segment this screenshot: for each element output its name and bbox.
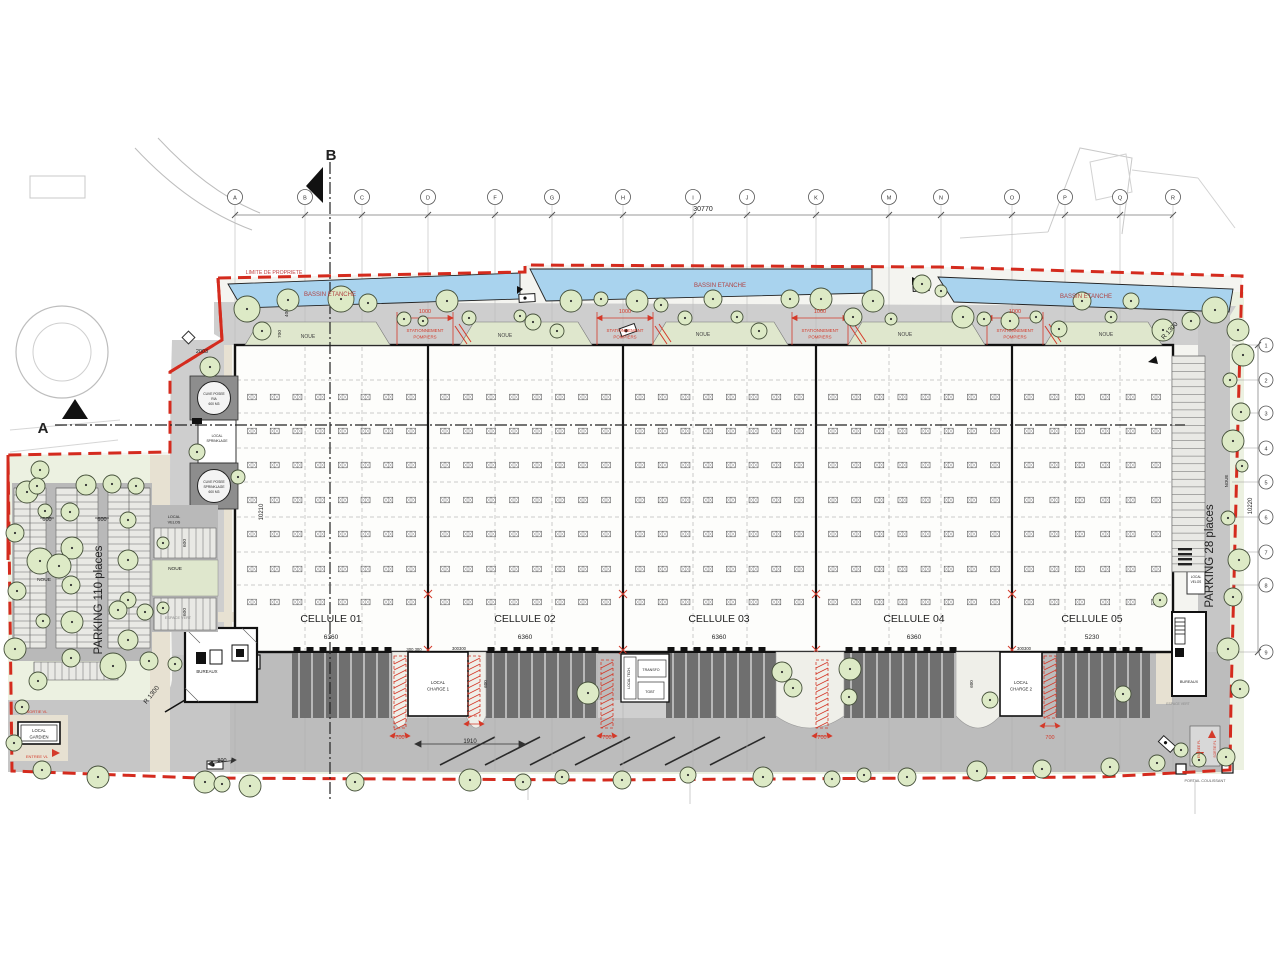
smoke-vent-icon (967, 394, 976, 400)
tree-icon (514, 310, 526, 322)
smoke-vent-icon (407, 531, 416, 537)
tree-icon (1227, 319, 1249, 341)
smoke-vent-icon (898, 497, 907, 503)
row-number: 6 (1264, 515, 1267, 521)
smoke-vent-icon (407, 497, 416, 503)
smoke-vent-icon (636, 428, 645, 434)
noue-right-label: NOUE (1224, 475, 1229, 488)
tree-icon (1217, 638, 1239, 660)
limite-propriete-label: LIMITE DE PROPRIETE (246, 270, 303, 276)
smoke-vent-icon (293, 462, 302, 468)
tree-icon (76, 475, 96, 495)
cellule-01-label: CELLULE 01 (300, 613, 361, 625)
tree-icon (844, 308, 862, 326)
grid-letter: Q (1118, 196, 1123, 202)
smoke-vent-icon (533, 394, 542, 400)
smoke-vent-icon (1152, 497, 1161, 503)
tree-icon (29, 478, 45, 494)
smoke-vent-icon (579, 599, 588, 605)
vehicle-icon (519, 294, 535, 303)
smoke-vent-icon (579, 462, 588, 468)
smoke-vent-icon (875, 566, 884, 572)
smoke-vent-icon (1025, 599, 1034, 605)
grid-letters: ABCDFGHIJKMNOPQR (228, 190, 1181, 205)
smoke-vent-icon (636, 599, 645, 605)
smoke-vent-icon (749, 394, 758, 400)
smoke-vent-icon (1126, 599, 1135, 605)
smoke-vent-icon (967, 531, 976, 537)
pompiers-label-1b: POMPIERS (413, 335, 436, 340)
cuve1-b: RIA (211, 397, 217, 401)
pompiers-label-3b: POMPIERS (808, 335, 831, 340)
smoke-vent-icon (726, 531, 735, 537)
smoke-vent-icon (1025, 394, 1034, 400)
smoke-vent-icon (772, 531, 781, 537)
smoke-vent-icon (681, 531, 690, 537)
tree-icon (824, 771, 840, 787)
tree-icon (1232, 344, 1254, 366)
tree-icon (231, 470, 245, 484)
smoke-vent-icon (248, 428, 257, 434)
smoke-vent-icon (1126, 566, 1135, 572)
noue-label-2: NOUE (498, 333, 513, 339)
smoke-vent-icon (898, 428, 907, 434)
smoke-vent-icon (316, 531, 325, 537)
transfo-label: TRANSFO (642, 668, 659, 672)
smoke-vent-icon (967, 599, 976, 605)
smoke-vent-icon (510, 599, 519, 605)
cuve2-a: CUVE POSEE (203, 480, 225, 484)
smoke-vent-icon (921, 462, 930, 468)
tree-icon (103, 475, 121, 493)
smoke-vent-icon (681, 599, 690, 605)
smoke-vent-icon (1101, 428, 1110, 434)
smoke-vent-icon (270, 428, 279, 434)
smoke-vent-icon (704, 462, 713, 468)
smoke-vent-icon (338, 531, 347, 537)
tree-icon (62, 576, 80, 594)
tree-icon (234, 296, 260, 322)
dim-600-dock-a: 600 (483, 680, 488, 688)
cuve2-c: 600 M3 (209, 490, 220, 494)
smoke-vent-icon (921, 497, 930, 503)
tree-icon (772, 662, 792, 682)
tree-icon (839, 658, 861, 680)
smoke-vent-icon (464, 566, 473, 572)
stall-dim-600-b: 600 (97, 517, 106, 523)
tree-icon (33, 761, 51, 779)
pompiers-label-4a: STATIONNEMENT (997, 328, 1034, 333)
tree-icon (61, 503, 79, 521)
smoke-vent-icon (338, 462, 347, 468)
espace-vert-left: ESPACE VERT (165, 616, 192, 620)
dim-700-west: 700 (277, 330, 283, 338)
smoke-vent-icon (316, 599, 325, 605)
row-number: 5 (1264, 480, 1267, 486)
bassin-etanche-label-3: BASSIN ETANCHE (1060, 294, 1112, 300)
row-number: 4 (1264, 446, 1267, 452)
smoke-vent-icon (726, 428, 735, 434)
tree-icon (1174, 743, 1188, 757)
tree-icon (194, 771, 216, 793)
smoke-vent-icon (579, 394, 588, 400)
tree-icon (1101, 758, 1119, 776)
smoke-vent-icon (533, 428, 542, 434)
smoke-vent-icon (875, 462, 884, 468)
tree-icon (862, 290, 884, 312)
smoke-vent-icon (248, 531, 257, 537)
smoke-vent-icon (316, 462, 325, 468)
tree-icon (118, 550, 138, 570)
noue-label-3: NOUE (696, 332, 711, 338)
tree-icon (62, 649, 80, 667)
smoke-vent-icon (829, 462, 838, 468)
local-velos-right-b: VELOS (1191, 580, 1202, 584)
smoke-vent-icon (898, 462, 907, 468)
smoke-vent-icon (795, 394, 804, 400)
smoke-vent-icon (487, 531, 496, 537)
grid-letter: H (621, 196, 625, 202)
smoke-vent-icon (602, 566, 611, 572)
local-charge2-b: CHARGE 2 (1010, 687, 1033, 692)
smoke-vent-icon (248, 497, 257, 503)
cuve1-a: CUVE POSEE (203, 392, 225, 396)
interior-dim-10210: 10210 (259, 503, 265, 520)
grid-letter: P (1063, 196, 1067, 202)
cellule-05-dim: 5230 (1085, 634, 1100, 641)
smoke-vent-icon (464, 428, 473, 434)
smoke-vent-icon (749, 531, 758, 537)
smoke-vent-icon (772, 462, 781, 468)
smoke-vent-icon (898, 531, 907, 537)
pompiers-dim-4: 1000 (1009, 309, 1021, 315)
smoke-vent-icon (510, 428, 519, 434)
smoke-vent-icon (658, 566, 667, 572)
smoke-vent-icon (556, 394, 565, 400)
smoke-vent-icon (967, 566, 976, 572)
smoke-vent-icon (772, 428, 781, 434)
tree-icon (1222, 430, 1244, 452)
smoke-vent-icon (772, 394, 781, 400)
sortie-vl-label: SORTIE VL (27, 709, 49, 714)
tree-icon (4, 638, 26, 660)
tree-icon (1123, 293, 1139, 309)
smoke-vent-icon (1075, 566, 1084, 572)
smoke-vent-icon (726, 599, 735, 605)
smoke-vent-icon (270, 566, 279, 572)
dim-700-dock-1: 700 (395, 735, 404, 741)
smoke-vent-icon (1050, 428, 1059, 434)
smoke-vent-icon (556, 497, 565, 503)
tree-icon (704, 290, 722, 308)
smoke-vent-icon (1050, 566, 1059, 572)
smoke-vent-icon (579, 531, 588, 537)
smoke-vent-icon (658, 531, 667, 537)
grid-letter: K (814, 196, 818, 202)
smoke-vent-icon (636, 531, 645, 537)
row-number: 9 (1264, 650, 1267, 656)
tree-icon (885, 313, 897, 325)
smoke-vent-icon (361, 566, 370, 572)
smoke-vent-icon (704, 394, 713, 400)
tree-icon (157, 602, 169, 614)
smoke-vent-icon (944, 566, 953, 572)
smoke-vent-icon (464, 599, 473, 605)
smoke-vent-icon (441, 428, 450, 434)
smoke-vent-icon (795, 462, 804, 468)
pompiers-label-2a: STATIONNEMENT (607, 328, 644, 333)
local-sprk-a: LOCAL (212, 434, 223, 438)
parking-right (1172, 356, 1205, 572)
tree-icon (100, 653, 126, 679)
local-charge1-b: CHARGE 1 (427, 687, 450, 692)
smoke-vent-icon (441, 462, 450, 468)
smoke-vent-icon (487, 497, 496, 503)
pompiers-dim-1: 1000 (419, 309, 431, 315)
smoke-vent-icon (875, 428, 884, 434)
smoke-vent-icon (441, 497, 450, 503)
smoke-vent-icon (1101, 566, 1110, 572)
tree-icon (253, 322, 271, 340)
smoke-vent-icon (898, 394, 907, 400)
site-plan-canvas: ABCDFGHIJKMNOPQR123456789BALIMITE DE PRO… (0, 0, 1280, 960)
dim-700-dock-4: 700 (1045, 735, 1054, 741)
tree-icon (8, 582, 26, 600)
tree-icon (157, 537, 169, 549)
section-label-a: A (38, 420, 49, 437)
smoke-vent-icon (749, 497, 758, 503)
tree-icon (38, 504, 52, 518)
smoke-vent-icon (293, 531, 302, 537)
smoke-vent-icon (1152, 428, 1161, 434)
smoke-vent-icon (921, 531, 930, 537)
smoke-vent-icon (967, 497, 976, 503)
smoke-vent-icon (384, 428, 393, 434)
smoke-vent-icon (556, 566, 565, 572)
smoke-vent-icon (361, 394, 370, 400)
tree-icon (525, 314, 541, 330)
tree-icon (214, 776, 230, 792)
tree-icon (935, 285, 947, 297)
tree-icon (6, 735, 22, 751)
smoke-vent-icon (338, 394, 347, 400)
local-gardien-b: GARDIEN (29, 735, 48, 740)
dim-800: 800 (217, 758, 226, 764)
tree-icon (239, 775, 261, 797)
tree-icon (751, 323, 767, 339)
smoke-vent-icon (1152, 531, 1161, 537)
smoke-vent-icon (772, 566, 781, 572)
smoke-vent-icon (749, 599, 758, 605)
cellule-03-label: CELLULE 03 (688, 613, 749, 625)
smoke-vent-icon (384, 531, 393, 537)
smoke-vent-icon (270, 497, 279, 503)
tree-icon (1232, 403, 1250, 421)
smoke-vent-icon (658, 497, 667, 503)
smoke-vent-icon (510, 531, 519, 537)
smoke-vent-icon (533, 566, 542, 572)
smoke-vent-icon (967, 428, 976, 434)
local-tech-label: LOCAL TECH. (627, 667, 631, 689)
section-arrow-a (62, 399, 88, 419)
smoke-vent-icon (441, 394, 450, 400)
smoke-vent-icon (1050, 497, 1059, 503)
smoke-vent-icon (338, 599, 347, 605)
smoke-vent-icon (772, 599, 781, 605)
smoke-vent-icon (407, 462, 416, 468)
smoke-vent-icon (795, 497, 804, 503)
smoke-vent-icon (1050, 599, 1059, 605)
smoke-vent-icon (1126, 497, 1135, 503)
tree-icon (781, 290, 799, 308)
smoke-vent-icon (875, 394, 884, 400)
smoke-vent-icon (658, 394, 667, 400)
tree-icon (168, 657, 182, 671)
row-number: 1 (1264, 343, 1267, 349)
tree-icon (1033, 760, 1051, 778)
smoke-vent-icon (829, 394, 838, 400)
smoke-vent-icon (316, 566, 325, 572)
smoke-vent-icon (510, 566, 519, 572)
tgbt-label: TGBT (645, 690, 655, 694)
level-2003: 2003 (196, 349, 208, 355)
smoke-vent-icon (944, 531, 953, 537)
smoke-vent-icon (829, 428, 838, 434)
noue-island-label: NOUE (168, 566, 182, 572)
smoke-vent-icon (270, 531, 279, 537)
tree-icon (436, 290, 458, 312)
tree-icon (515, 774, 531, 790)
smoke-vent-icon (749, 462, 758, 468)
dim-700-dock-3: 700 (817, 735, 826, 741)
smoke-vent-icon (704, 497, 713, 503)
smoke-vent-icon (875, 599, 884, 605)
bassin-etanche-label-2: BASSIN ETANCHE (694, 283, 746, 289)
smoke-vent-icon (921, 566, 930, 572)
smoke-vent-icon (556, 462, 565, 468)
smoke-vent-icon (1152, 462, 1161, 468)
smoke-vent-icon (991, 566, 1000, 572)
cuve1-c: 600 M3 (209, 402, 220, 406)
smoke-vent-icon (1025, 462, 1034, 468)
tree-icon (1224, 588, 1242, 606)
smoke-vent-icon (464, 462, 473, 468)
smoke-vent-icon (991, 394, 1000, 400)
cellule-01-dim: 6360 (324, 634, 339, 641)
tree-icon (1105, 311, 1117, 323)
smoke-vent-icon (772, 497, 781, 503)
smoke-vent-icon (602, 462, 611, 468)
smoke-vent-icon (1025, 497, 1034, 503)
pompiers-label-4b: POMPIERS (1003, 335, 1026, 340)
parking-110-label: PARKING 110 places (93, 545, 105, 654)
smoke-vent-icon (270, 599, 279, 605)
smoke-vent-icon (316, 428, 325, 434)
tree-icon (898, 768, 916, 786)
entree-vl-label: ENTREE VL (26, 754, 49, 759)
smoke-vent-icon (852, 428, 861, 434)
smoke-vent-icon (487, 394, 496, 400)
smoke-vent-icon (726, 566, 735, 572)
tree-icon (109, 601, 127, 619)
smoke-vent-icon (1152, 394, 1161, 400)
smoke-vent-icon (991, 599, 1000, 605)
grid-letter: B (303, 196, 307, 202)
tree-icon (967, 761, 987, 781)
tree-icon (550, 324, 564, 338)
tree-icon (1153, 593, 1167, 607)
tree-icon (913, 275, 931, 293)
smoke-vent-icon (361, 428, 370, 434)
stall-dim-600-a: 600 (42, 517, 51, 523)
smoke-vent-icon (704, 428, 713, 434)
smoke-vent-icon (749, 428, 758, 434)
smoke-vent-icon (1050, 531, 1059, 537)
smoke-vent-icon (384, 497, 393, 503)
smoke-vent-icon (533, 497, 542, 503)
smoke-vent-icon (726, 462, 735, 468)
tree-icon (680, 767, 696, 783)
bassin-etanche-label-1: BASSIN ETANCHE (304, 292, 356, 298)
smoke-vent-icon (898, 599, 907, 605)
smoke-vent-icon (510, 462, 519, 468)
tree-icon (1149, 755, 1165, 771)
smoke-vent-icon (464, 497, 473, 503)
smoke-vent-icon (602, 531, 611, 537)
smoke-vent-icon (533, 599, 542, 605)
tree-icon (731, 311, 743, 323)
portail-coulissant-label: PORTAIL COULISSANT (1184, 779, 1226, 783)
smoke-vent-icon (944, 428, 953, 434)
tree-icon (61, 611, 83, 633)
smoke-vent-icon (487, 566, 496, 572)
smoke-vent-icon (441, 599, 450, 605)
smoke-vent-icon (658, 428, 667, 434)
smoke-vent-icon (1126, 462, 1135, 468)
tree-icon (654, 298, 668, 312)
smoke-vent-icon (967, 462, 976, 468)
smoke-vent-icon (1025, 531, 1034, 537)
local-sprk-b: SPRINKLAGE (206, 439, 228, 443)
smoke-vent-icon (875, 531, 884, 537)
smoke-vent-icon (602, 428, 611, 434)
tree-icon (328, 286, 354, 312)
smoke-vent-icon (1025, 566, 1034, 572)
smoke-vent-icon (407, 394, 416, 400)
smoke-vent-icon (852, 531, 861, 537)
smoke-vent-icon (991, 428, 1000, 434)
tree-icon (47, 554, 71, 578)
tree-icon (6, 524, 24, 542)
tree-icon (1221, 511, 1235, 525)
smoke-vent-icon (361, 599, 370, 605)
smoke-vent-icon (487, 428, 496, 434)
tree-icon (555, 770, 569, 784)
grid-letter: G (550, 196, 554, 202)
grid-letter: M (887, 196, 892, 202)
tree-icon (359, 294, 377, 312)
smoke-vent-icon (704, 531, 713, 537)
smoke-vent-icon (407, 566, 416, 572)
smoke-vent-icon (921, 428, 930, 434)
smoke-vent-icon (487, 462, 496, 468)
smoke-vent-icon (510, 497, 519, 503)
tree-icon (462, 311, 476, 325)
smoke-vent-icon (795, 566, 804, 572)
smoke-vent-icon (316, 394, 325, 400)
pompiers-label-3a: STATIONNEMENT (802, 328, 839, 333)
smoke-vent-icon (795, 599, 804, 605)
